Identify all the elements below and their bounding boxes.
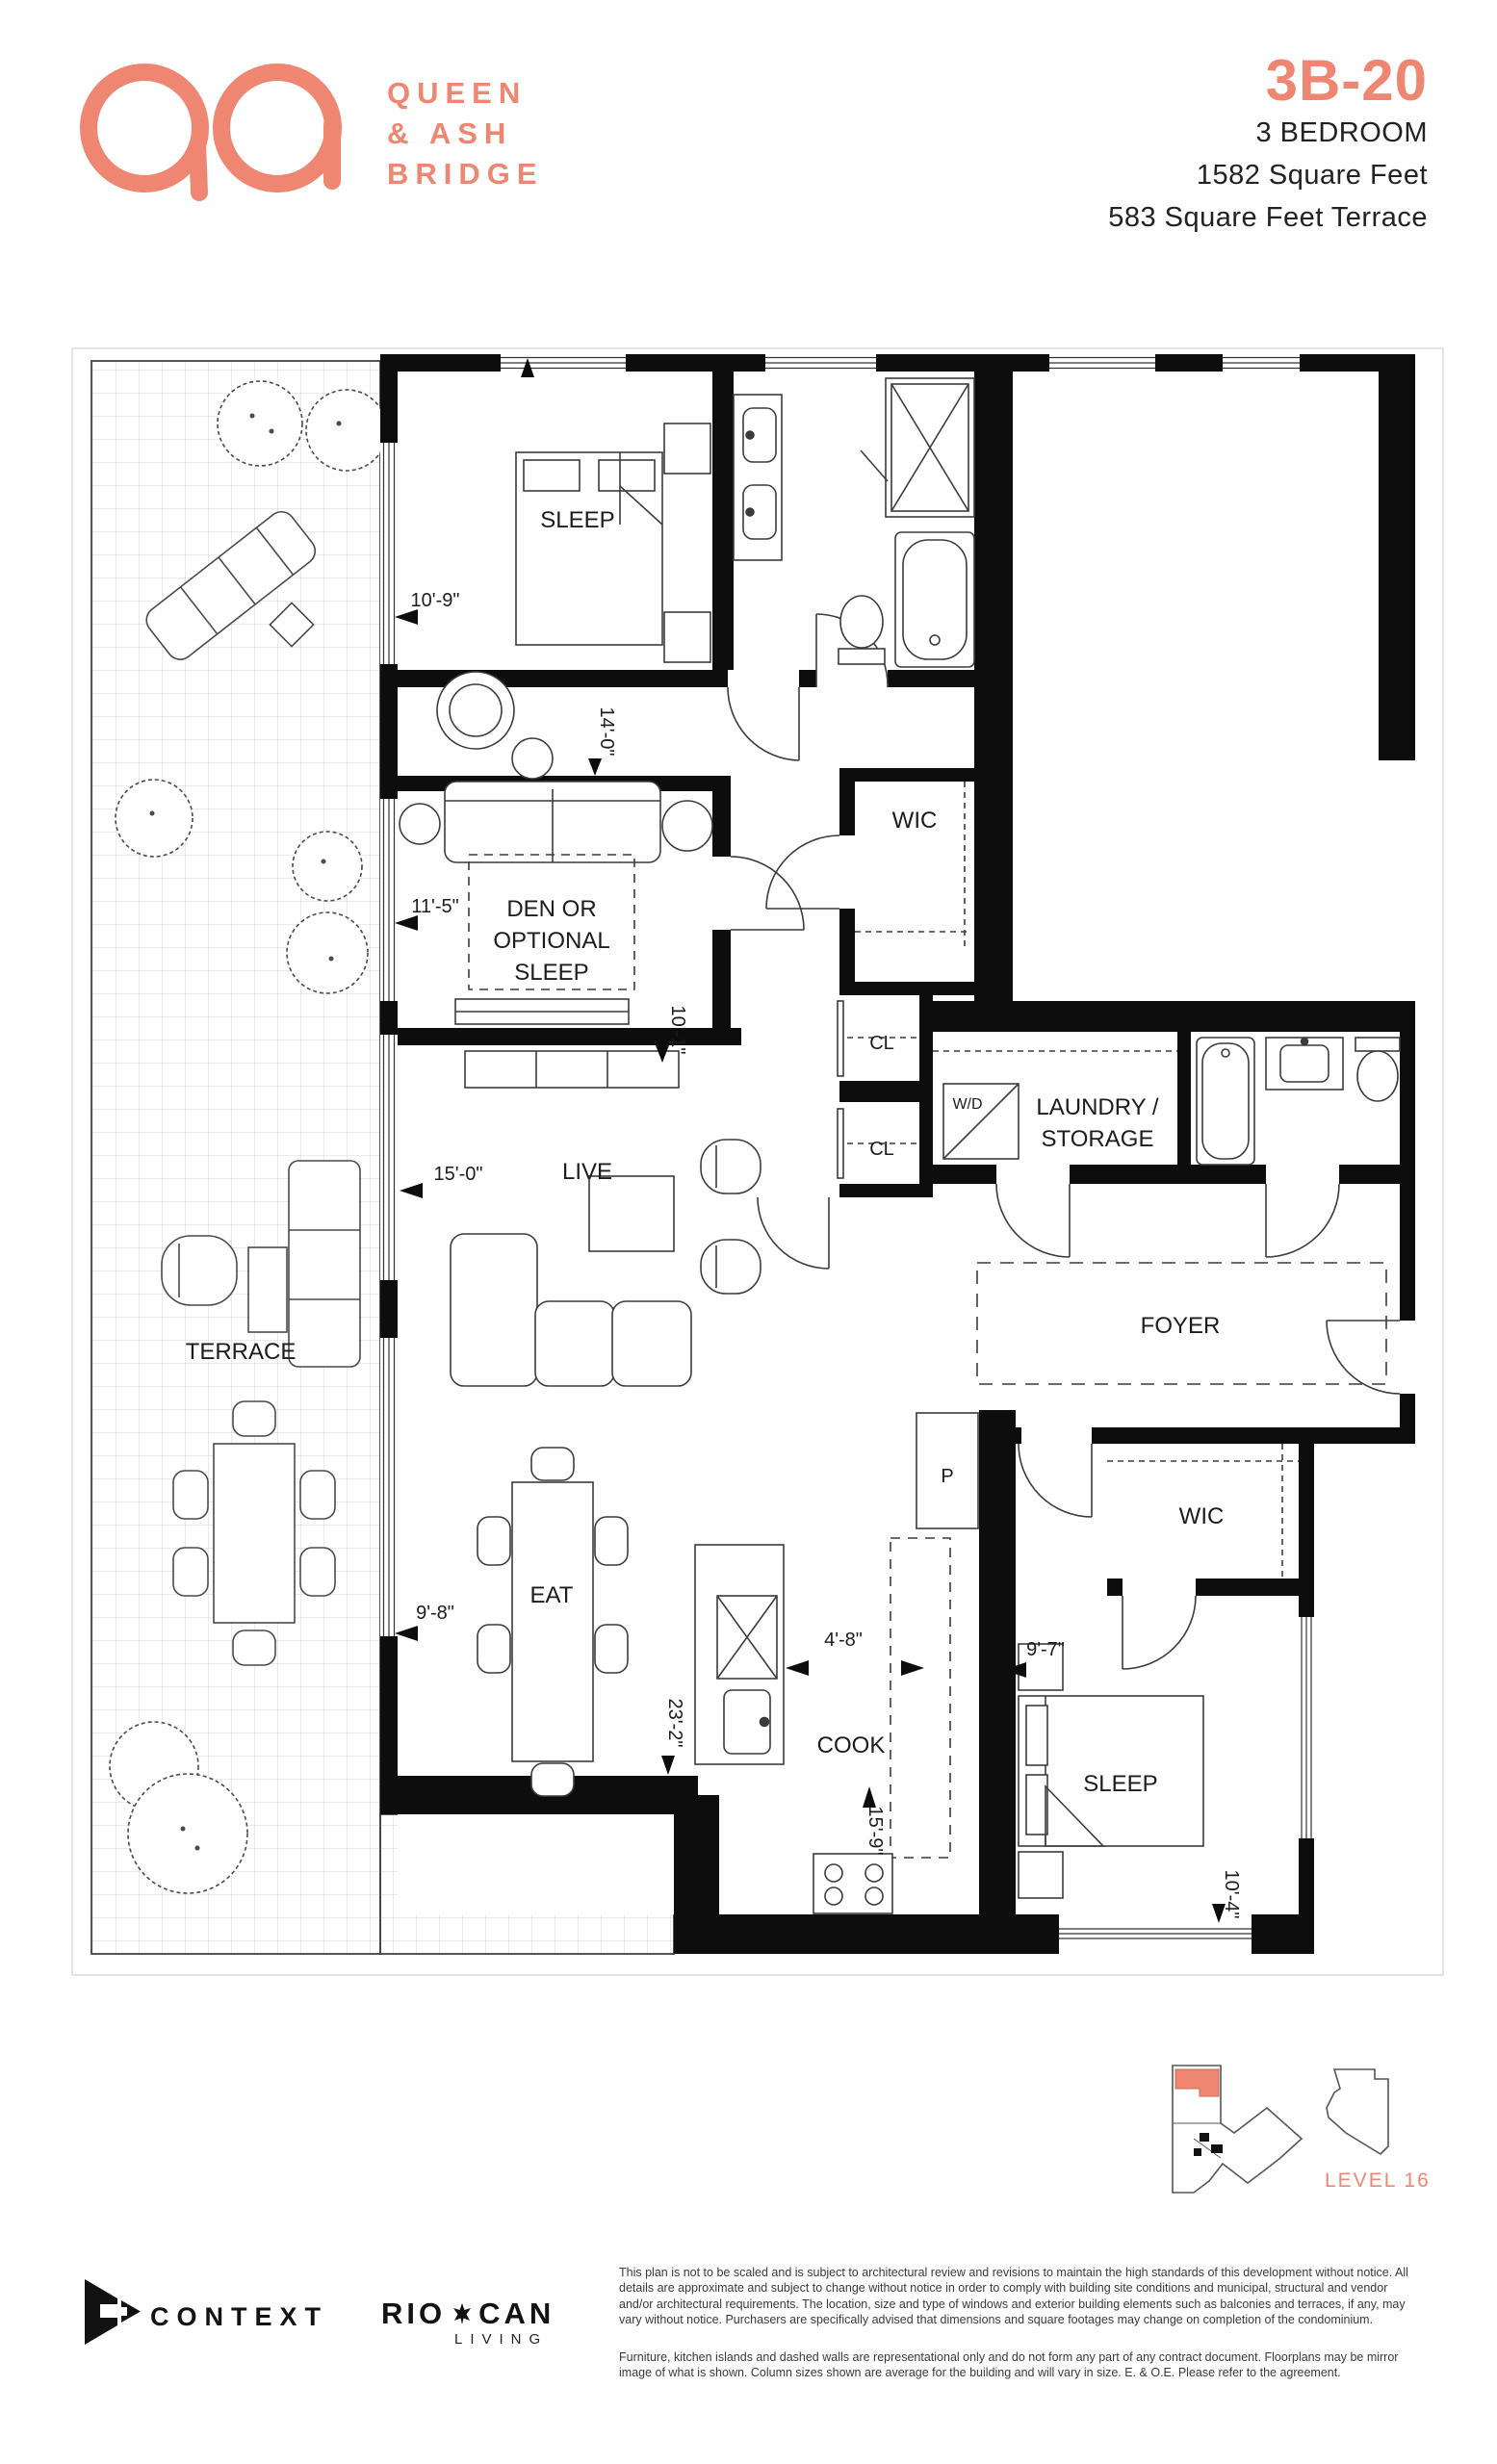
maple-leaf-icon: [452, 2302, 473, 2325]
bathtub-2: [1197, 1038, 1254, 1165]
logo-a-circle: [221, 72, 333, 184]
label-wic1: WIC: [892, 808, 938, 834]
floorplan: SLEEP WIC DEN OR OPTIONAL SLEEP CL CL W/…: [0, 346, 1497, 1988]
keyplan-site-outline: [1327, 2069, 1388, 2154]
brand-line-3: BRIDGE: [387, 154, 544, 194]
nightstand: [1019, 1852, 1063, 1898]
dim-live: 15'-0": [434, 1164, 483, 1185]
terrace-table-small: [248, 1247, 287, 1332]
stove: [813, 1854, 892, 1913]
dim-depth: 23'-2": [664, 1699, 685, 1748]
riocan-rio: RIO: [381, 2297, 446, 2331]
label-cook: COOK: [817, 1732, 886, 1758]
label-terrace: TERRACE: [186, 1339, 297, 1365]
kitchen-island: [695, 1545, 784, 1764]
label-wic2: WIC: [1179, 1503, 1225, 1529]
label-foyer: FOYER: [1141, 1313, 1221, 1339]
bathtub-ensuite: [895, 532, 974, 667]
terrace-sofa: [289, 1161, 360, 1367]
label-sleep1: SLEEP: [540, 507, 614, 533]
dim-cook: 15'-9": [865, 1807, 886, 1856]
riocan-living-text: LIVING: [454, 2331, 548, 2348]
dim-den: 11'-5": [411, 896, 458, 917]
dim-sleep2: 9'-7": [1026, 1639, 1065, 1660]
brand-line-2: & ASH: [387, 114, 544, 154]
logo-q-circle: [89, 72, 200, 184]
disclaimer-paragraph-2: Furniture, kitchen islands and dashed wa…: [619, 2349, 1424, 2381]
bed-primary: [516, 452, 662, 645]
unit-area: 1582 Square Feet: [1108, 154, 1428, 196]
brand-line-1: QUEEN: [387, 73, 544, 114]
dim-media: 10'-1": [667, 1006, 688, 1055]
label-sleep2: SLEEP: [1083, 1771, 1157, 1797]
keyplan-level-label: LEVEL 16: [1325, 2169, 1431, 2192]
label-laundry-2: STORAGE: [1042, 1126, 1154, 1152]
label-cl1: CL: [869, 1033, 894, 1054]
toilet-ensuite: [839, 596, 885, 664]
label-den-2: OPTIONAL: [493, 928, 609, 954]
nightstand: [664, 423, 710, 474]
unit-info: 3B-20 3 BEDROOM 1582 Square Feet 583 Squ…: [1108, 50, 1428, 239]
dim-eat: 9'-8": [416, 1603, 454, 1624]
label-den-3: SLEEP: [514, 960, 588, 986]
context-logo-text: CONTEXT: [150, 2302, 328, 2332]
terrace-chair: [162, 1236, 237, 1305]
nightstand: [664, 612, 710, 662]
unit-type: 3 BEDROOM: [1108, 112, 1428, 154]
brand-wordmark: QUEEN & ASH BRIDGE: [387, 73, 544, 194]
label-eat: EAT: [530, 1582, 574, 1608]
label-cl2: CL: [869, 1139, 894, 1160]
dim-sleep2-depth: 10'-4": [1221, 1870, 1242, 1919]
logo-q-tail: [197, 145, 199, 192]
label-pantry: P: [941, 1466, 953, 1487]
qa-logo-icon: [56, 46, 383, 219]
dim-den-top: 14'-0": [596, 707, 617, 757]
unit-code: 3B-20: [1108, 50, 1428, 112]
toilet-2: [1355, 1038, 1400, 1101]
label-den-1: DEN OR: [506, 896, 596, 922]
keyplan: LEVEL 16: [1126, 2012, 1497, 2247]
dim-sleep1: 10'-9": [411, 590, 460, 611]
washer-dryer: [943, 1084, 1019, 1159]
riocan-can: CAN: [478, 2297, 555, 2331]
terrace-area: 583 Square Feet Terrace: [1108, 196, 1428, 239]
disclaimer-paragraph-1: This plan is not to be scaled and is sub…: [619, 2265, 1424, 2328]
ensuite-vanity: [734, 395, 782, 560]
label-live: LIVE: [562, 1159, 612, 1185]
label-wd: W/D: [952, 1096, 982, 1113]
context-logo-icon: [81, 2277, 144, 2347]
dim-aisle: 4'-8": [824, 1630, 863, 1651]
label-laundry-1: LAUNDRY /: [1036, 1094, 1158, 1120]
riocan-logo: RIO CAN: [381, 2297, 555, 2331]
vanity-2: [1266, 1038, 1343, 1090]
